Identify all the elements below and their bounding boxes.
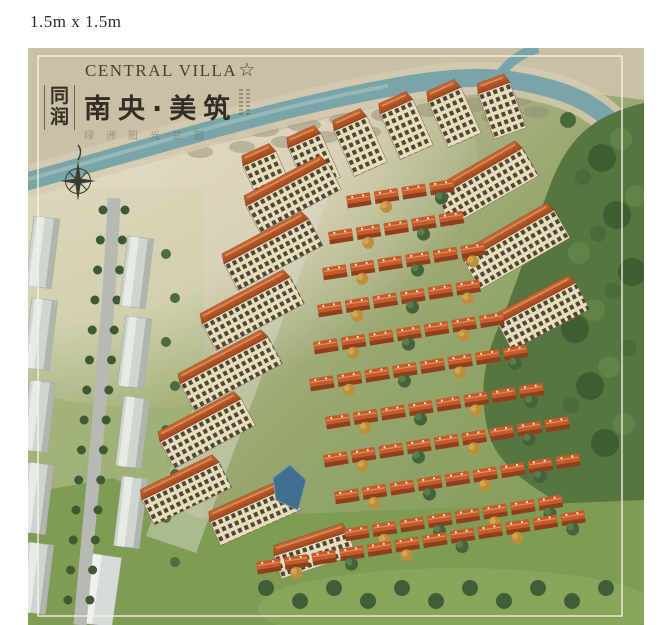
brand-name-english: CENTRAL VILLA☆ (85, 59, 257, 82)
dimension-label: 1.5m x 1.5m (30, 12, 121, 32)
masterplan-rendering-image[interactable]: CENTRAL VILLA☆ 同润 南央·美筑 绿洲阳光兰园 (28, 48, 644, 625)
developer-name-vertical: 同润 (44, 85, 75, 130)
project-title-chinese: 南央·美筑 (84, 87, 237, 126)
seal-marks (239, 89, 250, 115)
star-icon: ☆ (238, 60, 257, 81)
project-subtitle-chinese: 绿洲阳光兰园 (84, 127, 216, 142)
brand-en-text: CENTRAL VILLA (85, 61, 237, 80)
